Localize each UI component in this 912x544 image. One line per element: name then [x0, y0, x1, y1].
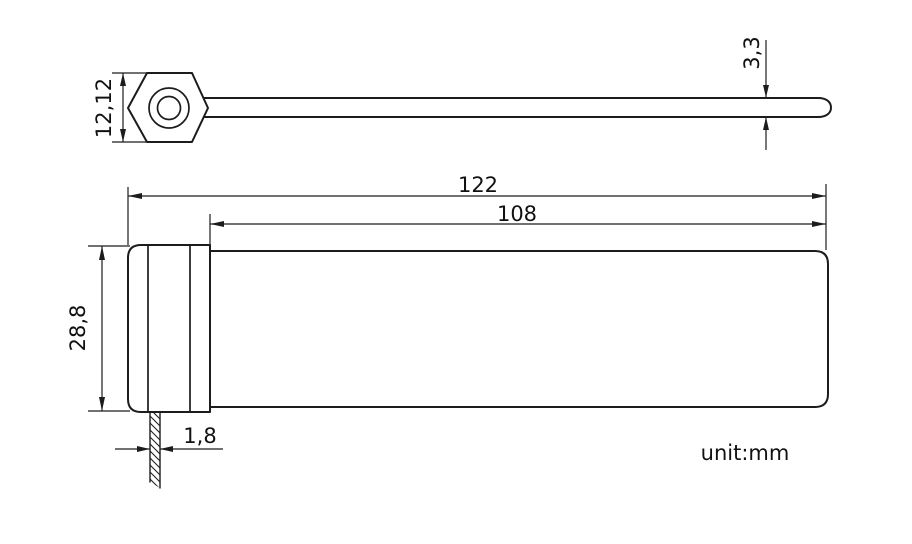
- arrow-body-width-top: [99, 246, 105, 260]
- arrow-strap-length-right: [812, 221, 826, 227]
- arrow-overall-right: [812, 193, 826, 199]
- arrow-tail-left: [137, 446, 150, 452]
- label-body-width: 28,8: [66, 305, 90, 352]
- technical-drawing-canvas: 12,12 3,3 122 108 28,8 1,8 unit:mm: [0, 0, 912, 544]
- label-overall-length: 122: [458, 173, 498, 197]
- seal-head-inner-hole: [158, 97, 181, 120]
- label-head-height: 12,12: [92, 78, 116, 138]
- seal-head-outer-hole: [149, 88, 189, 128]
- label-strap-length: 108: [497, 202, 537, 226]
- dimension-arrows: [99, 73, 826, 452]
- seal-label-plate: [210, 251, 828, 407]
- arrow-head-height-top: [120, 73, 126, 86]
- arrow-strap-length-left: [210, 221, 224, 227]
- arrow-tail-right: [160, 446, 173, 452]
- seal-strap-profile: [204, 98, 832, 117]
- label-tail-width: 1,8: [183, 424, 216, 448]
- arrow-head-height-bottom: [120, 129, 126, 142]
- seal-lock-body: [128, 245, 210, 412]
- seal-dimension-drawing: 12,12 3,3 122 108 28,8 1,8 unit:mm: [0, 0, 912, 544]
- arrow-strap-thickness-bottom: [763, 117, 769, 130]
- side-view: [128, 73, 831, 142]
- arrow-overall-left: [128, 193, 142, 199]
- seal-head-hexagon: [128, 73, 208, 142]
- label-strap-thickness: 3,3: [740, 36, 764, 69]
- unit-note: unit:mm: [701, 441, 790, 465]
- arrow-body-width-bottom: [99, 397, 105, 411]
- arrow-strap-thickness-top: [763, 85, 769, 98]
